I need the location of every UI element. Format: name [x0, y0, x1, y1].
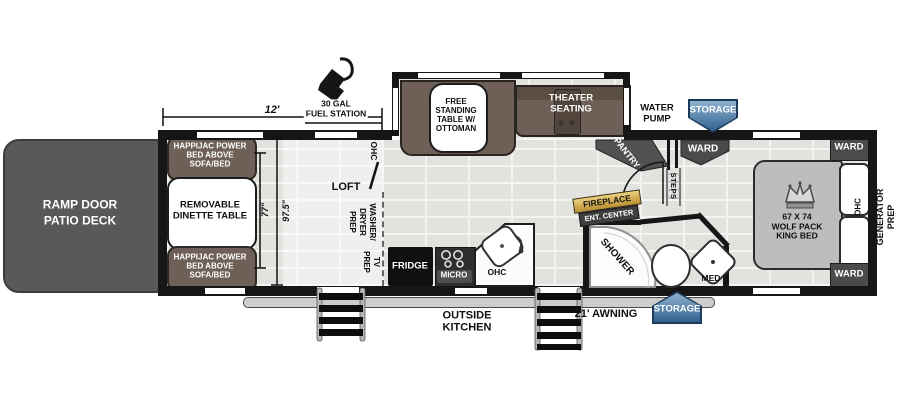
fuel-station-label: 30 GAL FUEL STATION	[304, 99, 368, 118]
stove-burners-icon	[442, 251, 463, 267]
free-standing-table-label: FREE STANDING TABLE W/ OTTOMAN	[435, 98, 476, 134]
garage-length-dim: 12'	[263, 104, 282, 116]
med-label: MED	[702, 274, 721, 284]
ramp-door-label: RAMP DOOR PATIO DECK	[43, 197, 117, 228]
ward-hall-label: WARD	[688, 143, 719, 154]
happijac-bed-bottom-label: HAPPIJAC POWER BED ABOVE SOFA/BED	[174, 254, 247, 281]
floorplan-linework	[0, 0, 900, 400]
micro-label: MICRO	[441, 272, 468, 281]
width-dim-97: 97.5"	[281, 200, 291, 222]
entry-steps-garage	[317, 288, 365, 341]
fridge-label: FRIDGE	[392, 262, 428, 273]
tv-prep-label: TV PREP	[361, 251, 381, 273]
crown-icon	[786, 181, 814, 208]
storage-badge-front-label: STORAGE	[690, 106, 737, 117]
loft-diagonal-wall	[370, 162, 378, 189]
storage-badge-rear-label: STORAGE	[654, 305, 701, 316]
water-pump-label: WATER PUMP	[640, 103, 674, 124]
outside-kitchen-label: OUTSIDE KITCHEN	[443, 310, 492, 335]
cupholder-icons	[559, 121, 575, 126]
floorplan: RAMP DOOR PATIO DECK HAPPIJAC POWER BED …	[0, 0, 900, 400]
loft-ohc-label: OHC	[368, 142, 378, 161]
washer-dryer-prep-label: WASHER/ DRYER PREP	[347, 203, 377, 240]
width-dim-77: 77"	[260, 203, 270, 217]
bedroom-ohc-label: OHC	[855, 198, 864, 216]
loft-label: LOFT	[332, 181, 361, 193]
toilet	[652, 245, 690, 287]
theater-seating-label: THEATER SEATING	[549, 93, 593, 114]
fuel-pump-icon	[318, 59, 352, 102]
dinette-table-label: REMOVABLE DINETTE TABLE	[173, 200, 247, 221]
kitchen-ohc-label: OHC	[488, 268, 507, 278]
happijac-bed-top-label: HAPPIJAC POWER BED ABOVE SOFA/BED	[174, 143, 247, 170]
ward-top-right-label: WARD	[834, 143, 863, 154]
king-bed-label: 67 X 74 WOLF PACK KING BED	[772, 213, 823, 242]
ward-bottom-right-label: WARD	[834, 270, 863, 281]
generator-prep-label: GENERATOR PREP	[875, 189, 897, 246]
awning-label: 21' AWNING	[575, 308, 638, 320]
steps-label: STEPS	[669, 172, 677, 199]
bathroom-wall-diag-1	[640, 216, 700, 222]
